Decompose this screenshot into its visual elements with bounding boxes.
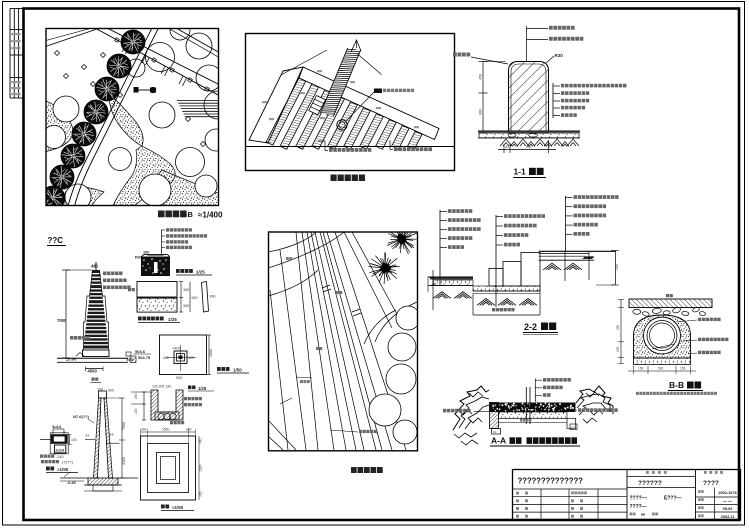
svg-text:E???—: E???— (664, 496, 682, 502)
svg-text:450: 450 (479, 74, 483, 80)
svg-text:890: 890 (210, 295, 216, 299)
svg-text:≈1/50: ≈1/50 (57, 467, 69, 472)
svg-text:150: 150 (134, 408, 138, 414)
svg-text:400: 400 (188, 356, 194, 360)
svg-text:500: 500 (176, 376, 182, 380)
svg-text:600: 600 (192, 296, 198, 300)
svg-text:3300: 3300 (122, 457, 126, 465)
svg-text:300: 300 (199, 491, 203, 497)
svg-text:N7.6(??): N7.6(??) (73, 414, 90, 419)
svg-text:??????????????: ?????????????? (518, 477, 584, 486)
svg-text:??: ?? (110, 433, 114, 437)
svg-text:1/25: 1/25 (198, 386, 207, 391)
svg-text:500: 500 (658, 367, 664, 371)
svg-text:10: 10 (493, 430, 497, 434)
svg-text:2u14: 2u14 (55, 449, 65, 453)
svg-text:1500: 1500 (162, 428, 170, 432)
svg-text:R30: R30 (555, 53, 564, 58)
svg-text:502.75: 502.75 (138, 355, 151, 360)
svg-text:+400: +400 (172, 347, 181, 351)
svg-text:300: 300 (199, 438, 203, 444)
svg-text:2002.11: 2002.11 (721, 515, 735, 519)
svg-text:05-02: 05-02 (723, 507, 733, 511)
svg-text:480: 480 (91, 264, 99, 269)
svg-text:10: 10 (571, 426, 575, 430)
svg-text:????—: ????— (630, 504, 647, 510)
svg-text:250: 250 (134, 393, 138, 399)
svg-text:1-1: 1-1 (514, 167, 527, 177)
svg-text:±0.00: ±0.00 (66, 357, 77, 362)
svg-text:1500: 1500 (209, 349, 213, 357)
svg-text:150: 150 (680, 367, 686, 371)
svg-text:350: 350 (183, 304, 189, 308)
svg-text:4500: 4500 (88, 369, 98, 374)
svg-text:A-A: A-A (491, 436, 506, 446)
svg-text:100: 100 (97, 387, 103, 391)
svg-text:130 200 130: 130 200 130 (152, 385, 171, 389)
svg-text:150: 150 (638, 367, 644, 371)
svg-text:150: 150 (71, 438, 77, 442)
svg-text:▬ ▬: ▬ ▬ (723, 499, 732, 503)
svg-text:7000: 7000 (57, 318, 67, 323)
svg-text:??: ?? (85, 434, 89, 438)
svg-text:R20: R20 (135, 255, 143, 260)
svg-text:????: ???? (703, 480, 719, 487)
svg-text:350: 350 (183, 288, 189, 292)
svg-text:400: 400 (615, 264, 619, 270)
svg-text:80: 80 (506, 145, 510, 149)
svg-text:600: 600 (479, 109, 483, 115)
svg-text:??????: ?????? (638, 480, 662, 487)
svg-text:≈1/50: ≈1/50 (172, 505, 184, 510)
svg-text:300: 300 (186, 428, 192, 432)
svg-text:500: 500 (108, 389, 114, 393)
svg-text:(7277): (7277) (62, 461, 74, 465)
svg-text:3u14: 3u14 (52, 424, 62, 429)
svg-text:7000: 7000 (122, 422, 126, 430)
svg-text:550: 550 (616, 324, 620, 330)
svg-text:360: 360 (526, 145, 532, 149)
svg-text:150: 150 (616, 346, 620, 352)
svg-text:1/25: 1/25 (168, 317, 177, 322)
svg-text:????—: ????— (630, 496, 647, 502)
svg-text:B-B: B-B (669, 380, 684, 390)
svg-text:-240: -240 (56, 455, 64, 459)
svg-text:1/50: 1/50 (233, 368, 242, 373)
svg-text:2002-1078: 2002-1078 (718, 491, 736, 495)
svg-text:~: ~ (503, 414, 505, 418)
svg-text:1/25: 1/25 (196, 270, 205, 275)
svg-text:-B: -B (185, 210, 193, 219)
svg-text:??C: ??C (48, 236, 64, 245)
svg-text:300: 300 (141, 428, 147, 432)
svg-text:≈1/400: ≈1/400 (198, 211, 223, 220)
svg-text:503.6: 503.6 (135, 349, 146, 354)
svg-text:100: 100 (143, 251, 149, 255)
svg-text:400: 400 (163, 356, 169, 360)
svg-text:1500: 1500 (199, 464, 203, 472)
svg-text:2-2: 2-2 (524, 322, 537, 332)
svg-text:-0.45: -0.45 (67, 481, 76, 485)
